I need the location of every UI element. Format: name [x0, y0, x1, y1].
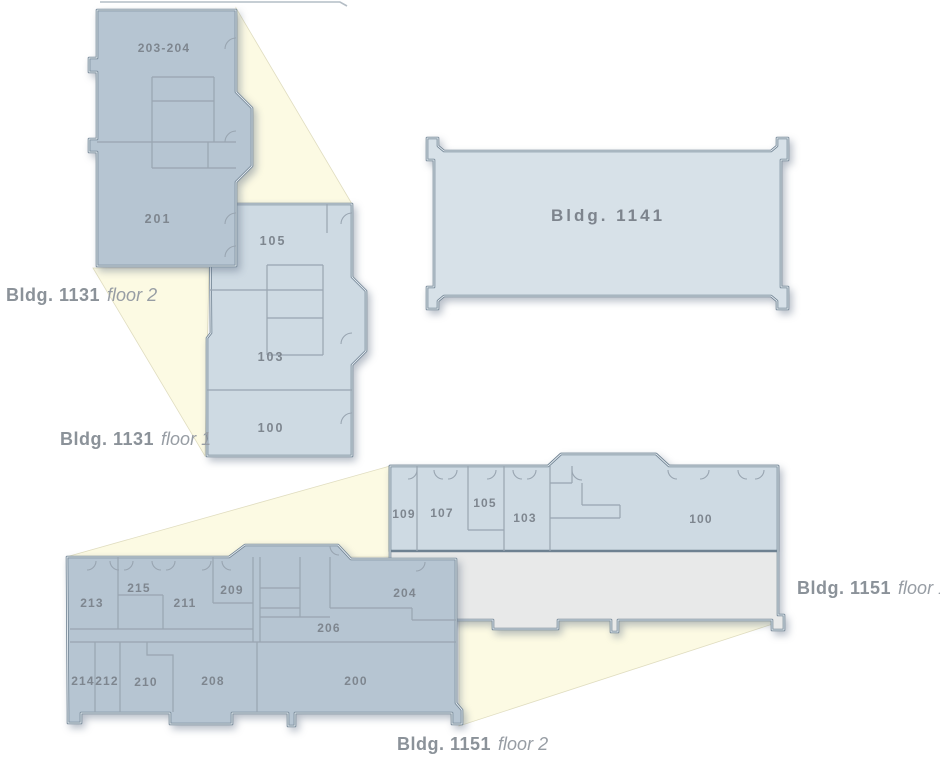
beam-1131-upper [236, 8, 352, 204]
floor-name: floor 2 [107, 285, 157, 305]
room-label: 105 [473, 496, 497, 510]
room-label: 204 [393, 586, 417, 600]
label-bldg-1151-floor-2: Bldg. 1151floor 2 [397, 734, 548, 755]
label-bldg-1151-floor-1: Bldg. 1151floor 1 [797, 578, 940, 599]
building-name: Bldg. 1131 [6, 285, 100, 305]
room-label: 201 [145, 212, 172, 226]
beam-1151-upper [66, 466, 390, 557]
building-name: Bldg. 1151 [797, 578, 891, 598]
floor-name: floor 1 [898, 578, 940, 598]
plan-bldg-1131-floor-2: 203-204 201 [89, 10, 252, 266]
room-label: 215 [127, 581, 151, 595]
label-bldg-1131-floor-2: Bldg. 1131floor 2 [6, 285, 157, 306]
room-label: 213 [80, 596, 104, 610]
room-label: 103 [513, 511, 537, 525]
room-label: 100 [258, 421, 285, 435]
room-label: 200 [344, 674, 368, 688]
floorplan-canvas: 105 103 100 203-204 201 109 107 105 103 … [0, 0, 940, 772]
room-label: 206 [317, 621, 341, 635]
label-bldg-1141: Bldg. 1141 [430, 206, 786, 226]
room-label: 208 [201, 674, 225, 688]
building-name: Bldg. 1141 [551, 206, 665, 225]
room-label: 214 [71, 674, 95, 688]
room-label: 109 [392, 507, 416, 521]
room-label: 210 [134, 675, 158, 689]
upper-band [390, 454, 778, 551]
floorplan-diagram: 105 103 100 203-204 201 109 107 105 103 … [0, 0, 940, 772]
top-edge-line [100, 2, 347, 6]
room-label: 107 [430, 506, 454, 520]
building-name: Bldg. 1151 [397, 734, 491, 754]
room-label: 211 [174, 596, 197, 610]
room-label: 105 [260, 234, 287, 248]
room-label: 212 [95, 674, 119, 688]
room-label: 103 [258, 350, 285, 364]
building-name: Bldg. 1131 [60, 429, 154, 449]
floor-name: floor 2 [498, 734, 548, 754]
label-bldg-1131-floor-1: Bldg. 1131floor 1 [60, 429, 211, 450]
room-label: 203-204 [138, 41, 190, 55]
floor-name: floor 1 [161, 429, 211, 449]
plan-bldg-1151-floor-2: 213 215 211 209 204 206 214 212 210 208 … [67, 545, 462, 726]
plan-outline [67, 545, 462, 726]
room-label: 100 [689, 512, 713, 526]
room-label: 209 [220, 583, 244, 597]
